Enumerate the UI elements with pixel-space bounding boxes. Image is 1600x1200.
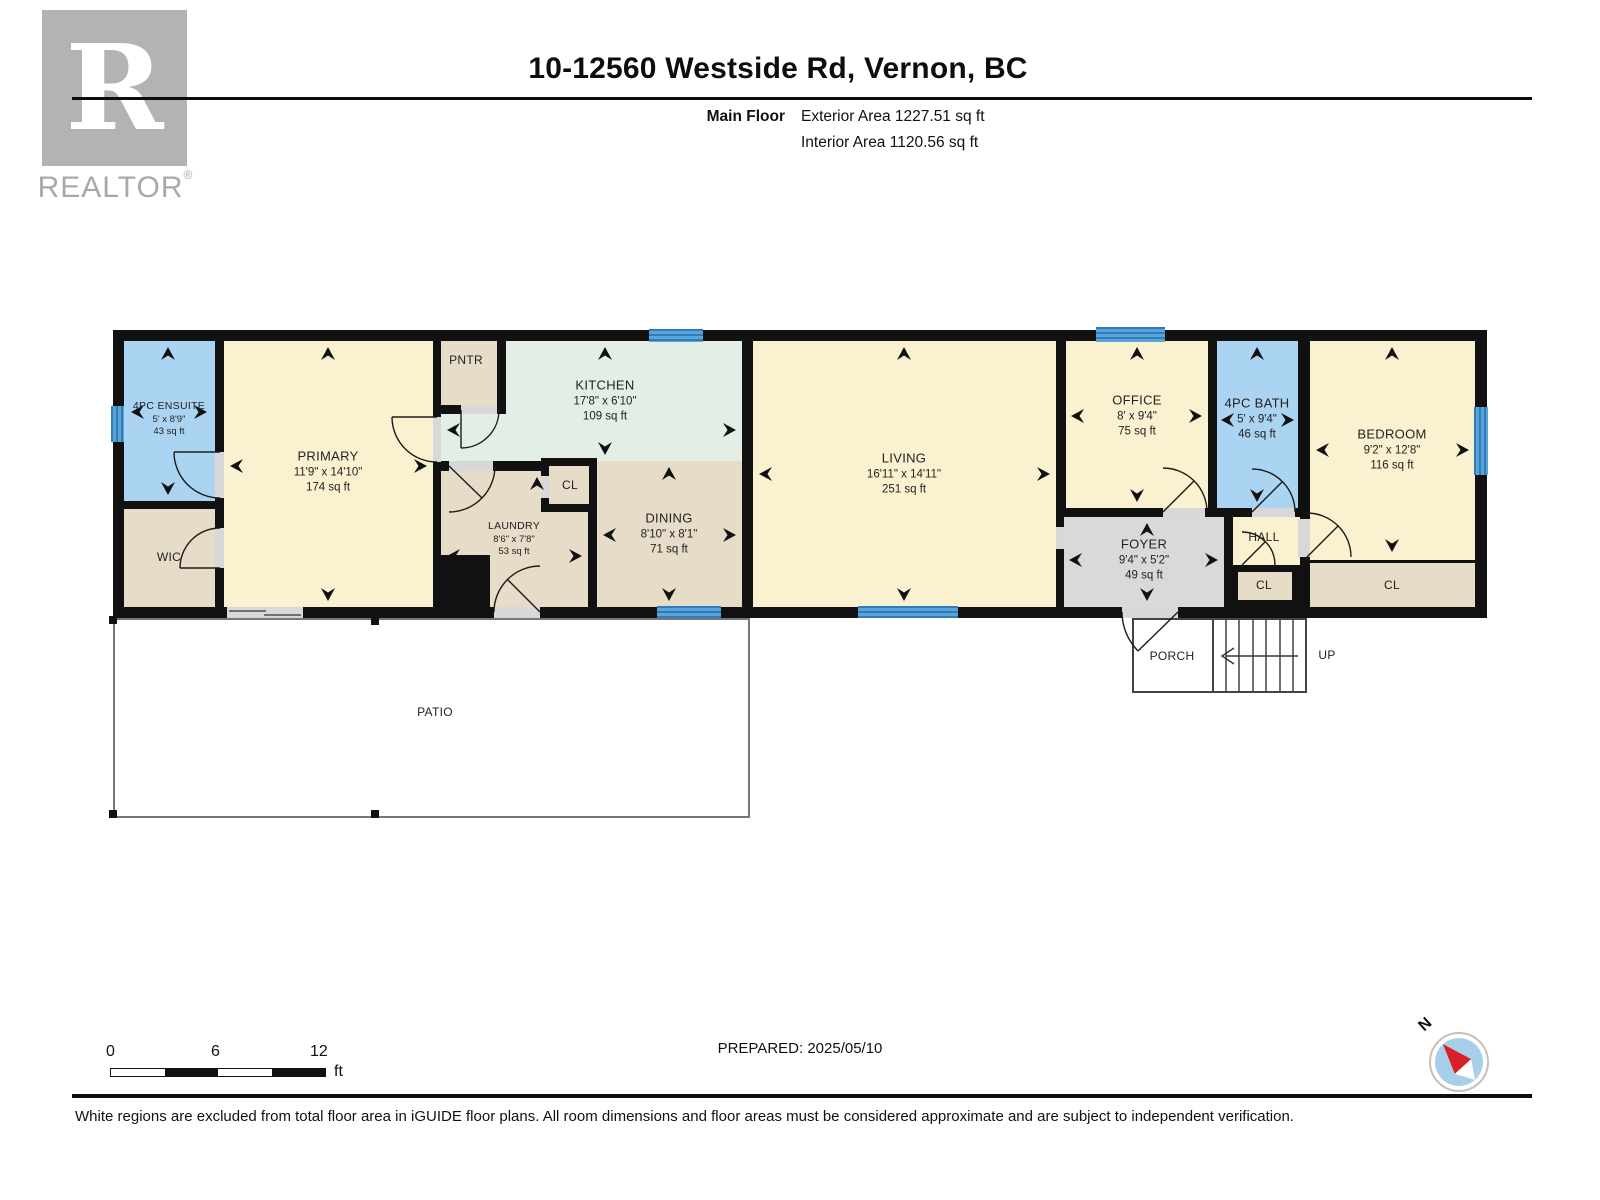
patio-post xyxy=(109,810,117,818)
room-pantry xyxy=(441,341,497,405)
floorplan-page: R REALTOR® 10-12560 Westside Rd, Vernon,… xyxy=(0,0,1600,1200)
header-rule xyxy=(72,97,1532,100)
scale-unit: ft xyxy=(334,1063,343,1081)
door-gap-ensuite xyxy=(215,452,224,498)
door-gap-primary xyxy=(433,417,441,462)
door-gap-office xyxy=(1163,508,1205,517)
label-hall: HALL xyxy=(1248,530,1279,546)
window-ensuite xyxy=(111,406,124,442)
door-gap-bath xyxy=(1252,508,1295,517)
label-patio: PATIO xyxy=(417,705,453,721)
label-closet-bedroom: CL xyxy=(1384,578,1400,594)
label-office: OFFICE8' x 9'4"75 sq ft xyxy=(1112,393,1161,440)
window-living xyxy=(858,606,958,618)
window-office xyxy=(1096,327,1165,342)
stairs-outline xyxy=(1212,618,1307,693)
label-bedroom: BEDROOM9'2" x 12'8"116 sq ft xyxy=(1357,427,1426,474)
door-gap-foyer-porch xyxy=(1122,607,1178,618)
prepared-date: PREPARED: 2025/05/10 xyxy=(0,1040,1600,1057)
room-kitchen-ext xyxy=(441,414,506,461)
scale-bar xyxy=(110,1068,326,1077)
page-title: 10-12560 Westside Rd, Vernon, BC xyxy=(0,52,1556,86)
window-dining xyxy=(657,606,721,618)
floor-label: Main Floor xyxy=(630,108,785,126)
door-gap-pantry xyxy=(461,405,497,414)
patio-post xyxy=(109,616,117,624)
registered-mark: ® xyxy=(184,168,194,182)
label-ensuite: 4PC ENSUITE5' x 8'9"43 sq ft xyxy=(133,400,205,438)
label-dining: DINING8'10" x 8'1"71 sq ft xyxy=(641,511,698,558)
door-gap-laundry-exterior xyxy=(494,607,540,618)
disclaimer-text: White regions are excluded from total fl… xyxy=(75,1108,1294,1125)
label-foyer: FOYER9'4" x 5'2"49 sq ft xyxy=(1119,537,1169,584)
door-gap-wic xyxy=(215,528,224,568)
label-primary: PRIMARY11'9" x 14'10"174 sq ft xyxy=(294,449,363,496)
exterior-area: Exterior Area 1227.51 sq ft xyxy=(801,108,985,126)
label-closet-laundry: CL xyxy=(562,478,578,494)
patio-post xyxy=(371,617,379,625)
label-living: LIVING16'11" x 14'11"251 sq ft xyxy=(867,451,941,498)
realtor-logo-word: REALTOR® xyxy=(28,168,203,205)
footer-rule xyxy=(72,1094,1532,1098)
label-wic: WIC xyxy=(157,550,181,566)
window-bedroom xyxy=(1474,407,1488,475)
label-pantry: PNTR xyxy=(449,353,483,369)
opening-living-foyer xyxy=(1056,527,1066,549)
compass-icon xyxy=(1427,1030,1491,1094)
label-stairs-up: UP xyxy=(1318,648,1335,664)
label-bath: 4PC BATH5' x 9'4"46 sq ft xyxy=(1224,396,1289,443)
realtor-logo-icon: R xyxy=(42,10,187,166)
door-gap-laundry xyxy=(449,461,493,471)
label-laundry: LAUNDRY8'6" x 7'8"53 sq ft xyxy=(488,520,540,558)
door-gap-bedroom xyxy=(1298,519,1310,557)
label-kitchen: KITCHEN17'8" x 6'10"109 sq ft xyxy=(573,378,636,425)
patio-post xyxy=(371,810,379,818)
label-porch: PORCH xyxy=(1150,649,1195,665)
sliding-door-patio xyxy=(227,607,303,618)
interior-area: Interior Area 1120.56 sq ft xyxy=(801,134,978,152)
label-closet-hall: CL xyxy=(1256,578,1272,594)
door-gap-closet-laundry xyxy=(541,476,549,498)
utility-block xyxy=(433,555,490,607)
realtor-logo-r: R xyxy=(65,29,163,147)
window-kitchen xyxy=(649,329,703,342)
